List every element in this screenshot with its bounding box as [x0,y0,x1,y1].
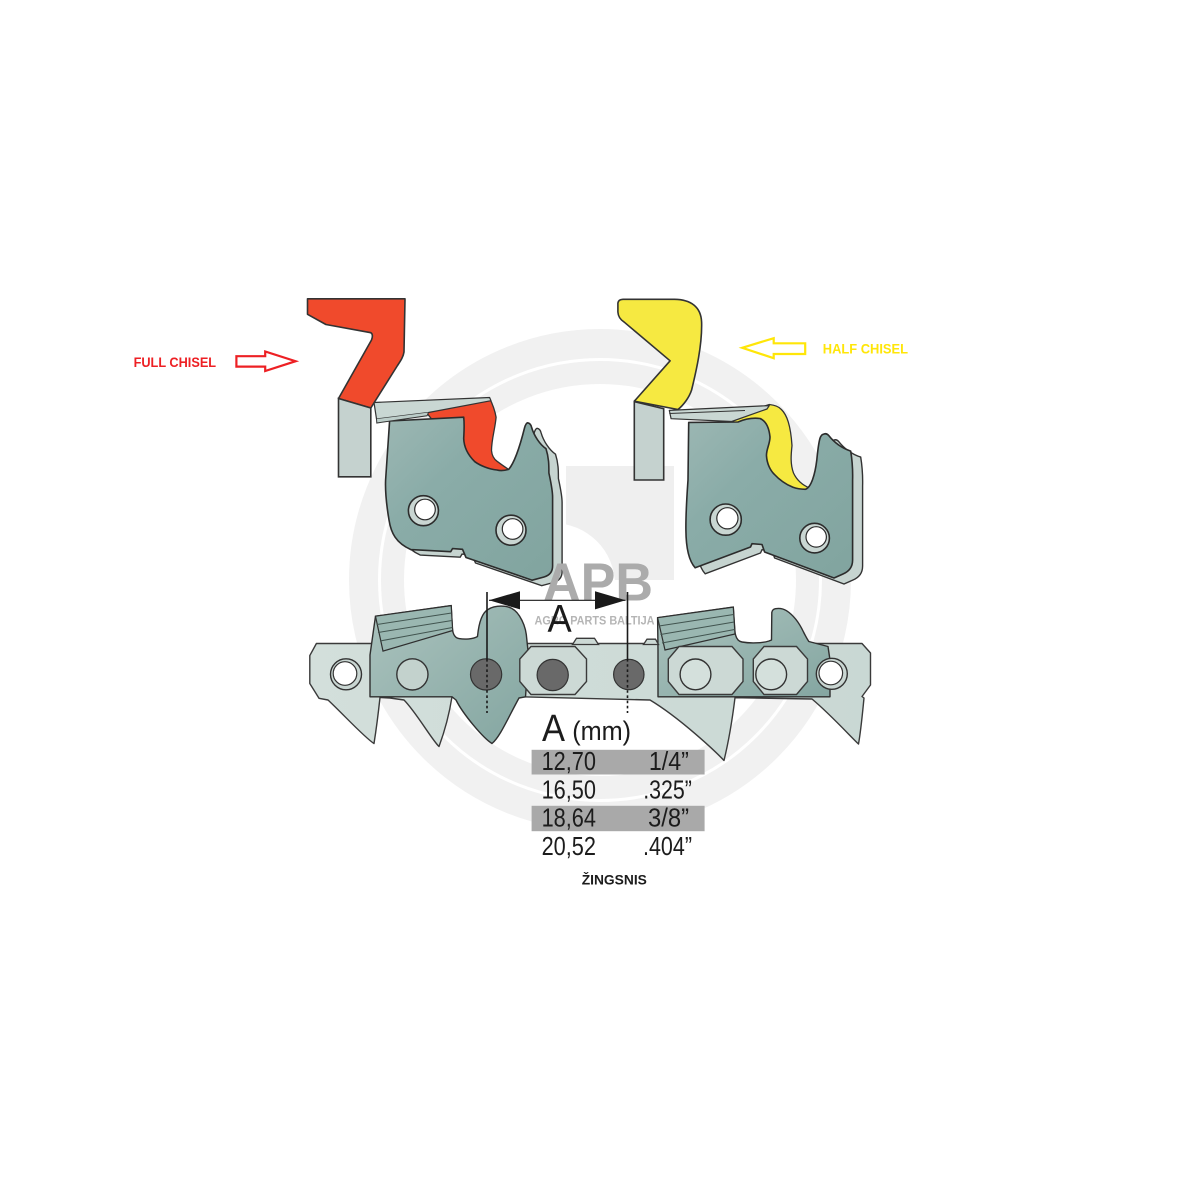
svg-text:A: A [542,708,566,750]
svg-text:(mm): (mm) [572,716,631,746]
svg-text:20,52: 20,52 [542,831,596,861]
svg-text:.325”: .325” [643,774,692,804]
svg-text:HALF CHISEL: HALF CHISEL [823,340,909,356]
svg-text:16,50: 16,50 [542,774,596,804]
svg-text:A: A [548,598,572,641]
svg-text:1/4”: 1/4” [649,746,689,776]
svg-text:ŽINGSNIS: ŽINGSNIS [582,871,647,888]
svg-text:18,64: 18,64 [542,803,596,833]
svg-text:3/8”: 3/8” [648,803,689,833]
svg-text:12,70: 12,70 [542,746,596,776]
svg-text:FULL CHISEL: FULL CHISEL [134,354,217,370]
svg-text:.404”: .404” [643,831,692,861]
